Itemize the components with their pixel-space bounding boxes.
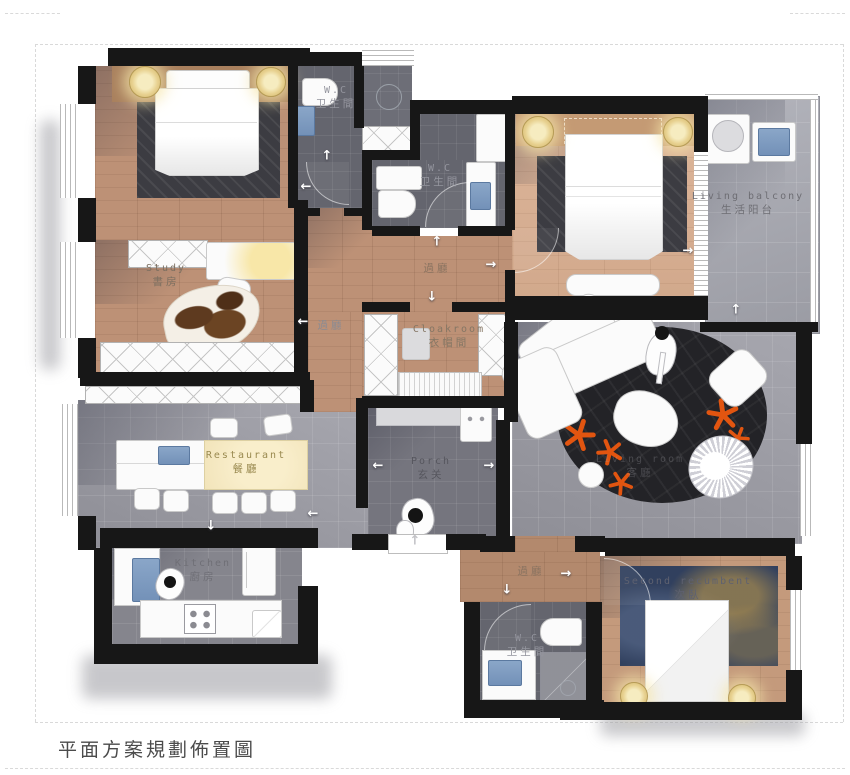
wall [298, 586, 318, 664]
frame-dash [5, 768, 845, 769]
entry-arrow-up-icon: ↑ [410, 534, 421, 549]
washing-machine-drum [758, 128, 790, 156]
room-label-en: Restaurant [206, 450, 286, 463]
bed-bench [566, 274, 660, 296]
dining-chair [263, 413, 294, 437]
frame-dash [35, 44, 36, 722]
sink [296, 106, 315, 136]
wall [80, 372, 310, 386]
room-label-hall-bottom: 過廳 [518, 565, 545, 578]
wardrobe [364, 314, 398, 396]
bedside-lamp-icon [256, 67, 286, 97]
sink [488, 660, 522, 686]
frame-dash [843, 44, 844, 722]
wall [452, 302, 512, 312]
shower-drain-icon [560, 680, 576, 696]
wall [356, 398, 368, 508]
room-label-en: Second recumbent [624, 576, 752, 589]
bedside-lamp-icon [663, 117, 693, 147]
direction-arrow-up-icon: ↑ [322, 149, 333, 164]
hall-cabinet [362, 126, 414, 152]
direction-arrow-right-icon: → [561, 567, 572, 582]
room-label-en: Living room [596, 454, 684, 467]
room-label-en: Study [146, 263, 186, 276]
direction-arrow-left-icon: ← [308, 507, 319, 522]
window [790, 590, 804, 670]
sink [470, 182, 491, 210]
room-label-zh: 餐廳 [206, 463, 286, 476]
refrigerator-handle [246, 552, 247, 588]
window [62, 404, 78, 516]
island-sink [158, 446, 190, 465]
room-label-hall-top: 過廳 [424, 262, 451, 275]
wall [78, 516, 96, 550]
direction-arrow-down-icon: ↓ [502, 583, 513, 598]
dining-chair [134, 488, 160, 510]
wall [78, 198, 96, 242]
wall [94, 644, 318, 664]
room-label-en: Cloakroom [413, 324, 485, 337]
wall [560, 702, 802, 720]
frame-dash [5, 13, 60, 14]
dining-chair [210, 418, 238, 438]
stove [184, 604, 216, 634]
room-label-zh: 次臥 [624, 589, 752, 602]
wall [344, 208, 364, 216]
direction-arrow-right-icon: → [484, 459, 495, 474]
frame-dash [790, 13, 845, 14]
balcony-window [705, 90, 818, 100]
direction-arrow-left-icon: ← [301, 180, 312, 195]
room-label-study: Study 書房 [146, 263, 186, 289]
room-label-zh: 過廳 [318, 319, 345, 332]
frame-dash [35, 44, 843, 45]
floor-plan-canvas: W.C 卫生間 W.C 卫生間 W.C 卫生間 Study 書房 Living … [0, 0, 850, 775]
direction-arrow-left-icon: ← [373, 459, 384, 474]
room-label-zh: 卫生間 [507, 646, 548, 659]
page-title: 平面方案規劃佈置圖 [58, 735, 256, 762]
wall [505, 114, 515, 230]
wall [300, 380, 314, 412]
dining-chair [212, 492, 238, 514]
toilet-tank [376, 166, 422, 190]
direction-arrow-down-icon: ↓ [427, 290, 438, 305]
room-label-zh: 廚房 [175, 571, 231, 584]
bed [645, 600, 729, 702]
room-label-zh: 書房 [146, 276, 186, 289]
study-desk [206, 242, 296, 280]
dining-chair [163, 490, 189, 512]
sideboard [85, 386, 302, 404]
wall [410, 114, 420, 160]
toilet [378, 190, 416, 218]
room-label-zh: 過廳 [424, 262, 451, 275]
shower-drain-icon [376, 84, 402, 110]
room-label-living-room: Living room 客廳 [596, 454, 684, 480]
room-label-en: Living balcony [692, 191, 804, 204]
bed-fold-line [565, 196, 661, 197]
window [60, 104, 78, 198]
room-label-wc3: W.C 卫生間 [507, 633, 548, 659]
room-label-en: Kitchen [175, 558, 231, 571]
wall [796, 332, 812, 444]
room-label-hall-left: 過廳 [318, 319, 345, 332]
wall [296, 52, 362, 66]
room-label-zh: 玄关 [411, 469, 451, 482]
room-label-zh: 生活阳台 [692, 204, 804, 217]
refrigerator [242, 546, 276, 596]
room-label-zh: 衣帽間 [413, 337, 485, 350]
room-label-zh: 客廳 [596, 467, 684, 480]
bed-fold-line [155, 122, 257, 123]
dining-chair [241, 492, 267, 514]
corner-cabinet [252, 610, 282, 638]
room-label-second-bedroom: Second recumbent 次臥 [624, 576, 752, 602]
wall [496, 420, 510, 538]
window [694, 152, 708, 296]
wall [700, 322, 818, 332]
peacock-chair-seat [700, 452, 730, 480]
direction-arrow-right-icon: → [486, 258, 497, 273]
wall [296, 208, 320, 216]
direction-arrow-left-icon: ← [298, 315, 309, 330]
wall [288, 66, 298, 208]
wall [694, 96, 708, 152]
exterior-shadow [40, 120, 60, 370]
room-label-living-balcony: Living balcony 生活阳台 [692, 191, 804, 217]
room-label-zh: 卫生間 [316, 98, 357, 111]
window [800, 444, 814, 536]
wall [362, 396, 512, 408]
room-label-en: Porch [411, 456, 451, 469]
study-wardrobe [100, 342, 302, 374]
wall [362, 302, 410, 312]
wall [575, 536, 605, 552]
direction-arrow-right-icon: → [683, 244, 694, 259]
wall [586, 602, 602, 712]
room-label-restaurant: Restaurant 餐廳 [206, 450, 286, 476]
wall [362, 150, 372, 230]
person-head [655, 326, 669, 340]
floor-hall-opening [515, 536, 575, 552]
bedside-lamp-icon [522, 116, 554, 148]
wall [410, 100, 516, 114]
bed [155, 88, 259, 176]
wall [480, 536, 515, 552]
shoe-stool [460, 406, 492, 442]
balcony-basin-icon [712, 120, 744, 152]
direction-arrow-down-icon: ↓ [206, 519, 217, 534]
room-label-en: W.C [507, 633, 548, 646]
bed [565, 134, 663, 260]
wall [605, 538, 795, 556]
direction-arrow-up-icon: ↑ [432, 235, 443, 250]
cloakroom-bench [398, 372, 482, 398]
wall [464, 602, 480, 712]
wall [458, 226, 512, 236]
wall [372, 226, 420, 236]
room-label-en: W.C [420, 163, 461, 176]
room-label-en: W.C [316, 85, 357, 98]
wall [94, 548, 112, 650]
wall [512, 96, 708, 114]
room-label-kitchen: Kitchen 廚房 [175, 558, 231, 584]
room-label-zh: 卫生間 [420, 176, 461, 189]
room-label-wc2: W.C 卫生間 [420, 163, 461, 189]
balcony-railing [810, 96, 818, 332]
wall [786, 556, 802, 590]
room-label-porch: Porch 玄关 [411, 456, 451, 482]
wall [294, 200, 308, 374]
bed-fold-line [565, 186, 661, 187]
window [60, 242, 78, 338]
room-label-cloakroom: Cloakroom 衣帽間 [413, 324, 485, 350]
dining-chair [270, 490, 296, 512]
wall [78, 66, 96, 104]
bedside-lamp-icon [129, 66, 161, 98]
person-head [408, 508, 423, 523]
wall [108, 48, 310, 66]
window [362, 50, 414, 66]
room-label-zh: 過廳 [518, 565, 545, 578]
wall [352, 534, 388, 550]
direction-arrow-up-icon: ↑ [731, 303, 742, 318]
room-label-wc1: W.C 卫生間 [316, 85, 357, 111]
wall [505, 296, 708, 320]
